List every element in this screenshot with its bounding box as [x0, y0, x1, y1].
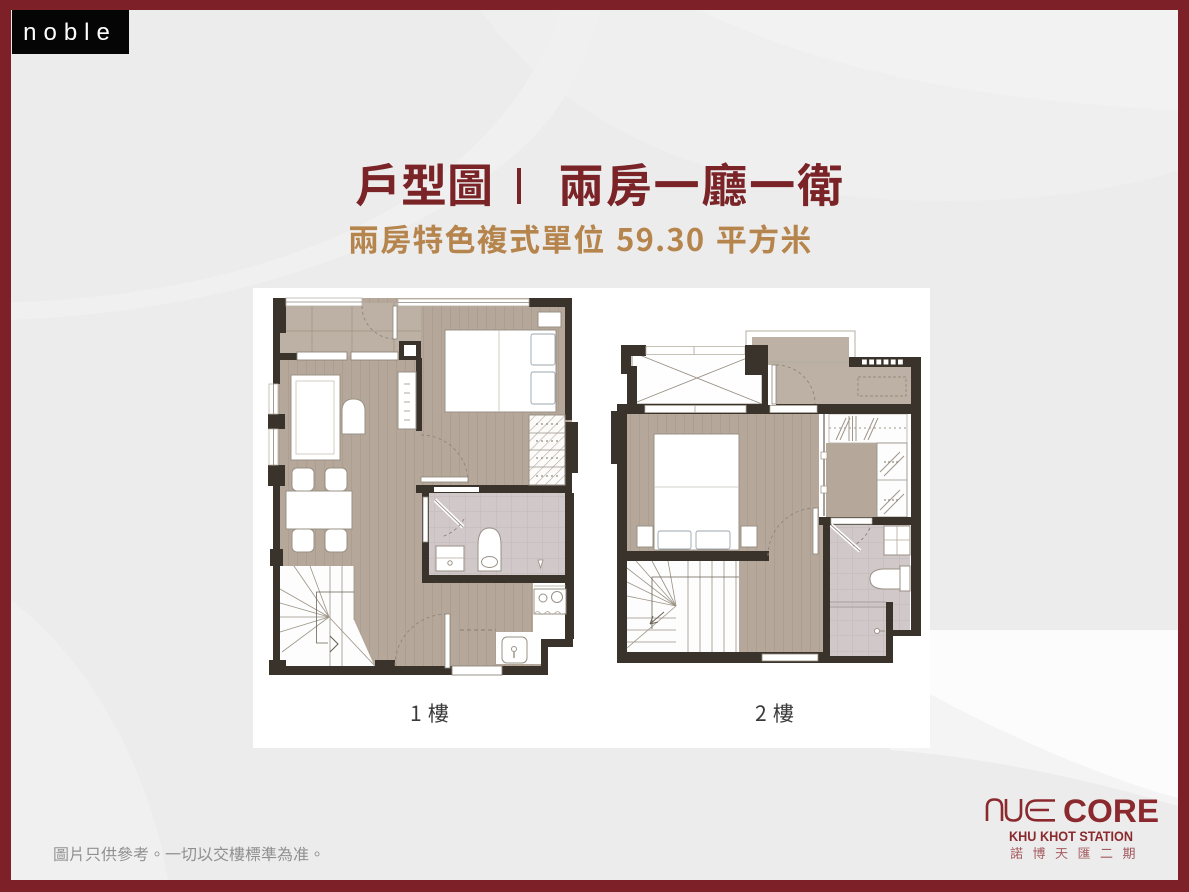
svg-text:CORE: CORE: [1063, 793, 1159, 829]
svg-text:noble: noble: [23, 19, 117, 46]
svg-text:KHU KHOT STATION: KHU KHOT STATION: [1009, 829, 1133, 844]
